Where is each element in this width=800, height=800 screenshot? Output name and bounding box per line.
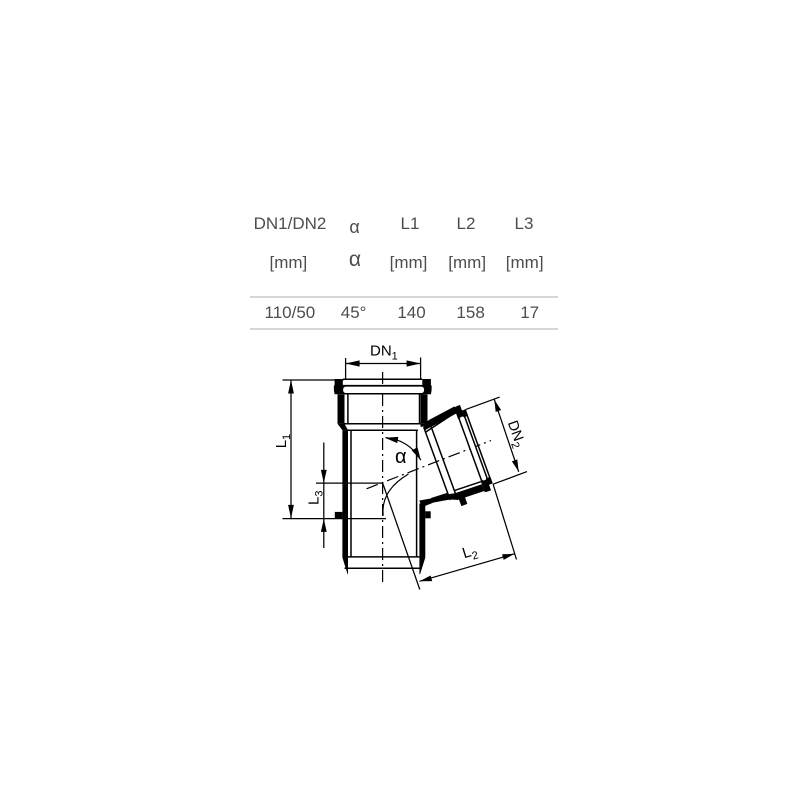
svg-text:DN2: DN2 <box>501 418 528 450</box>
svg-text:L2: L2 <box>460 542 480 565</box>
svg-text:L3: L3 <box>306 491 326 505</box>
svg-text:L1: L1 <box>273 434 293 448</box>
svg-text:DN1: DN1 <box>370 343 398 363</box>
svg-text:α: α <box>395 446 407 468</box>
